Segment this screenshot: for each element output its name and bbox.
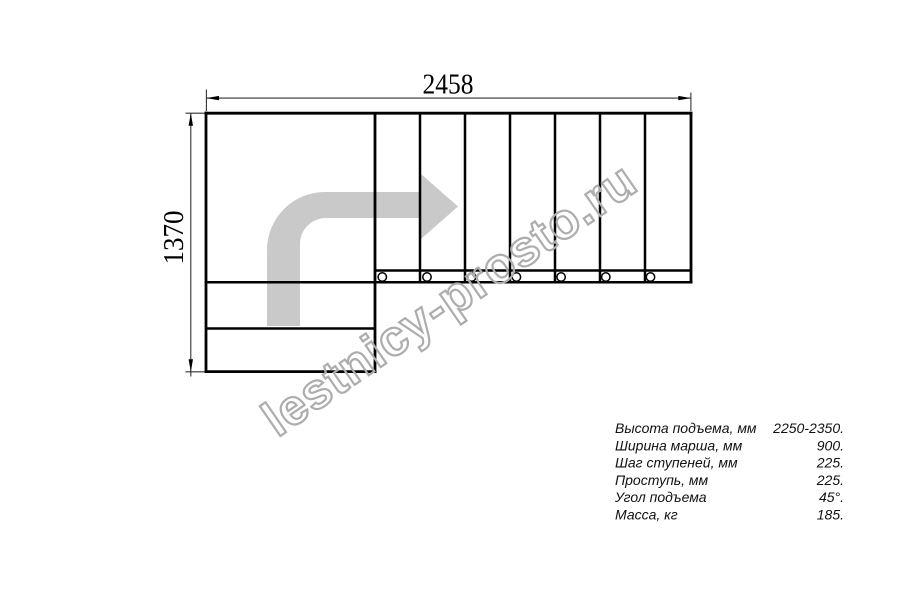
svg-text:45°.: 45°. bbox=[819, 489, 844, 505]
svg-text:Масса, кг: Масса, кг bbox=[615, 506, 678, 522]
svg-text:Угол подъема: Угол подъема bbox=[614, 489, 707, 505]
svg-text:900.: 900. bbox=[817, 437, 844, 453]
svg-text:225.: 225. bbox=[816, 455, 844, 471]
svg-text:2458: 2458 bbox=[423, 69, 474, 100]
svg-text:Проступь, мм: Проступь, мм bbox=[615, 472, 709, 488]
svg-text:225.: 225. bbox=[816, 472, 844, 488]
svg-text:Ширина марша, мм: Ширина марша, мм bbox=[615, 437, 743, 453]
svg-text:2250-2350.: 2250-2350. bbox=[772, 420, 844, 436]
svg-text:Шаг ступеней, мм: Шаг ступеней, мм bbox=[615, 455, 738, 471]
svg-text:185.: 185. bbox=[817, 506, 844, 522]
svg-text:1370: 1370 bbox=[159, 211, 190, 265]
svg-text:Высота подъема, мм: Высота подъема, мм bbox=[615, 420, 757, 436]
